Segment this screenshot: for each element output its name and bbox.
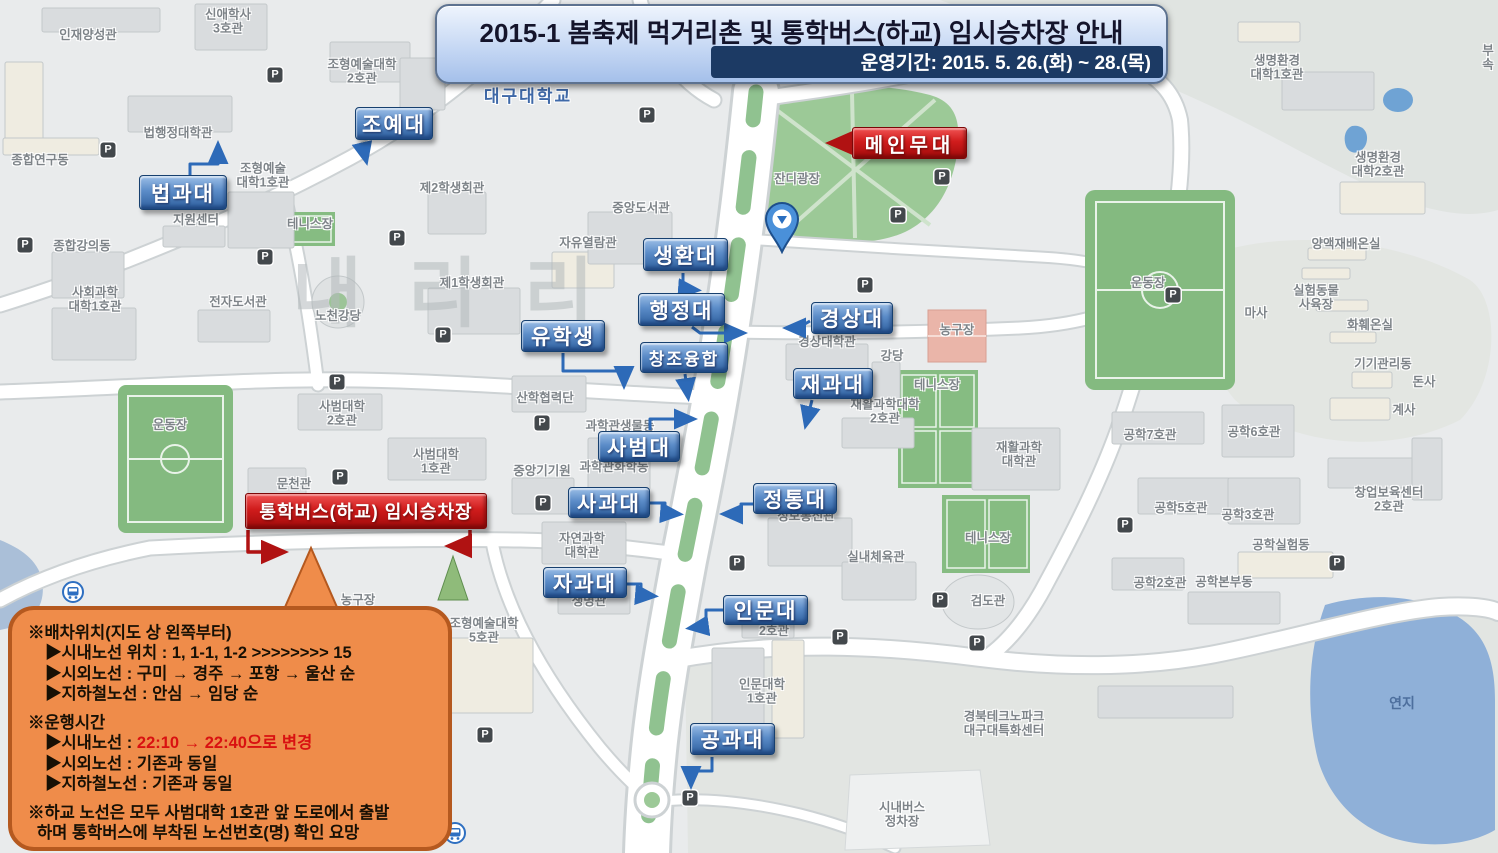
parking-icon: P	[1166, 288, 1181, 303]
map-label: 재활과학대학 2호관	[850, 398, 919, 427]
map-label: 신애학사 3호관	[205, 8, 251, 37]
callout-lines: ※배차위치(지도 상 왼쪽부터)▶시내노선 위치 : 1, 1-1, 1-2 >…	[28, 623, 442, 844]
map-pin-icon	[764, 202, 800, 254]
college-label: 사범대	[598, 431, 680, 462]
bus-stop-label: 통학버스(하교) 임시승차장	[245, 493, 487, 529]
college-label: 사과대	[568, 487, 650, 518]
parking-icon: P	[858, 278, 873, 293]
parking-icon: P	[330, 375, 345, 390]
parking-icon: P	[18, 238, 33, 253]
map-label: 운동장	[1131, 276, 1166, 290]
map-label: 자유열람관	[559, 236, 617, 250]
map-label: 돈사	[1412, 375, 1435, 389]
parking-icon: P	[683, 791, 698, 806]
map-label: 사범대학 1호관	[413, 448, 459, 477]
map-label: 계사	[1392, 403, 1415, 417]
callout-line: ※운행시간	[28, 713, 442, 733]
map-label: 자연과학 대학관	[559, 532, 605, 561]
roundabout-center	[644, 792, 660, 808]
college-label: 정통대	[753, 483, 837, 514]
parking-icon: P	[640, 108, 655, 123]
college-label: 생환대	[643, 238, 728, 271]
map-label: 공학7호관	[1124, 428, 1177, 442]
map-label: 재활과학 대학관	[996, 441, 1042, 470]
college-label: 재과대	[793, 368, 873, 399]
map-label: 산학협력단	[516, 391, 574, 405]
callout-line: ▶지하철노선 : 기존과 동일	[28, 774, 442, 794]
callout-line: ▶시외노선 : 구미 → 경주 → 포항 → 울산 순	[28, 664, 442, 684]
parking-icon: P	[101, 143, 116, 158]
parking-icon: P	[535, 416, 550, 431]
map-label: 중앙기기원	[513, 464, 571, 478]
main-stage-label: 메인무대	[852, 127, 967, 159]
map-label: 사범대학 2호관	[319, 400, 365, 429]
map-label: 노천강당	[315, 309, 361, 323]
map-label: 기기관리동	[1354, 357, 1412, 371]
map-label: 공학5호관	[1155, 501, 1208, 515]
map-label: 인문대학 1호관	[739, 678, 785, 707]
callout-line: 하며 통학버스에 부착된 노선번호(명) 확인 요망	[28, 823, 442, 843]
map-label: 공학6호관	[1228, 425, 1281, 439]
map-label: 공학2호관	[1134, 576, 1187, 590]
parking-icon: P	[1330, 556, 1345, 571]
map-label: 화훼온실	[1347, 318, 1393, 332]
map-label: 지원센터	[173, 213, 219, 227]
map-label: 마사	[1244, 306, 1267, 320]
college-label: 공과대	[690, 723, 775, 755]
map-label: 연지	[1389, 695, 1415, 711]
map-label: 생명환경 대학2호관	[1352, 151, 1405, 180]
map-label: 운동장	[153, 418, 188, 432]
college-label: 행정대	[638, 293, 725, 326]
map-label: 공학실험동	[1252, 538, 1310, 552]
map-label: 법행정대학관	[143, 126, 212, 140]
parking-icon: P	[891, 208, 906, 223]
parking-icon: P	[268, 68, 283, 83]
map-label: 대구대학교	[484, 87, 572, 107]
callout-line: ▶지하철노선 : 안심 → 임당 순	[28, 684, 442, 704]
map-label: 실내체육관	[847, 550, 905, 564]
map-label: 전자도서관	[209, 295, 267, 309]
map-label: 인재양성관	[59, 28, 117, 42]
map-label: 종합강의동	[53, 239, 111, 253]
small-pond	[1383, 88, 1413, 112]
map-label: 조형예술대학 2호관	[327, 58, 396, 87]
map-label: 강당	[880, 349, 903, 363]
parking-icon: P	[436, 328, 451, 343]
map-label: 종합연구동	[11, 153, 69, 167]
college-label: 인문대	[723, 595, 808, 625]
map-label: 사회과학 대학1호관	[69, 286, 122, 315]
college-label: 자과대	[543, 567, 627, 598]
parking-icon: P	[933, 593, 948, 608]
poster-title: 2015-1 봄축제 먹거리촌 및 통학버스(하교) 임시승차장 안내	[437, 13, 1166, 50]
college-label: 조예대	[355, 107, 433, 140]
parking-icon: P	[258, 250, 273, 265]
map-label: 실험동물 사육장	[1293, 284, 1339, 313]
map-label: 농구장	[940, 323, 975, 337]
parking-icon: P	[536, 496, 551, 511]
map-label: 제1학생회관	[440, 276, 504, 290]
bus-stop-icon	[62, 581, 84, 603]
map-label: 양액재배온실	[1311, 237, 1380, 251]
map-label: 테니스장	[287, 217, 333, 231]
map-label: 문천관	[277, 477, 312, 491]
callout-line: ▶시외노선 : 기존과 동일	[28, 754, 442, 774]
map-label: 경상대학관	[798, 335, 856, 349]
poster-period: 운영기간: 2015. 5. 26.(화) ~ 28.(목)	[711, 46, 1163, 78]
info-callout: ※배차위치(지도 상 왼쪽부터)▶시내노선 위치 : 1, 1-1, 1-2 >…	[8, 606, 452, 851]
map-label: 제2학생회관	[420, 181, 484, 195]
title-banner: 2015-1 봄축제 먹거리촌 및 통학버스(하교) 임시승차장 안내 운영기간…	[435, 4, 1168, 84]
map-label: 생명환경 대학1호관	[1251, 54, 1304, 83]
map-label: 2호관	[759, 624, 789, 638]
map-label: 공학3호관	[1222, 508, 1275, 522]
college-label: 유학생	[521, 320, 605, 352]
parking-icon: P	[935, 170, 950, 185]
map-label: 창업보육센터 2호관	[1354, 486, 1423, 515]
callout-line: ▶시내노선 : 22:10 → 22:40으로 변경	[28, 733, 442, 753]
map-label: 중앙도서관	[612, 201, 670, 215]
parking-icon: P	[333, 470, 348, 485]
parking-icon: P	[1118, 518, 1133, 533]
map-label: 잔디광장	[774, 172, 820, 186]
festival-map-poster: 내리리 인재양성관신애학사 3호관조형예술대학 2호관대구대학교종합연구동법행정…	[0, 0, 1498, 853]
map-label: 테니스장	[914, 378, 960, 392]
callout-line: ※하교 노선은 모두 사범대학 1호관 앞 도로에서 출발	[28, 803, 442, 823]
map-label: 시내버스 정차장	[879, 801, 925, 830]
map-label: 공학본부동	[1195, 575, 1253, 589]
college-label: 경상대	[811, 302, 893, 334]
college-label: 창조융합	[640, 342, 728, 373]
parking-icon: P	[478, 728, 493, 743]
college-label: 법과대	[139, 175, 227, 210]
parking-icon: P	[390, 231, 405, 246]
callout-line: ※배차위치(지도 상 왼쪽부터)	[28, 623, 442, 643]
callout-line: ▶시내노선 위치 : 1, 1-1, 1-2 >>>>>>>> 15	[28, 643, 442, 663]
parking-icon: P	[730, 556, 745, 571]
map-label: 검도관	[971, 594, 1006, 608]
parking-icon: P	[833, 630, 848, 645]
parking-icon: P	[970, 636, 985, 651]
map-label: 부속	[1482, 44, 1494, 73]
map-label: 조형예술대학 5호관	[449, 617, 518, 646]
map-label: 조형예술 대학1호관	[237, 162, 290, 191]
map-label: 테니스장	[965, 531, 1011, 545]
map-label: 경북테크노파크 대구대특화센터	[964, 710, 1045, 739]
